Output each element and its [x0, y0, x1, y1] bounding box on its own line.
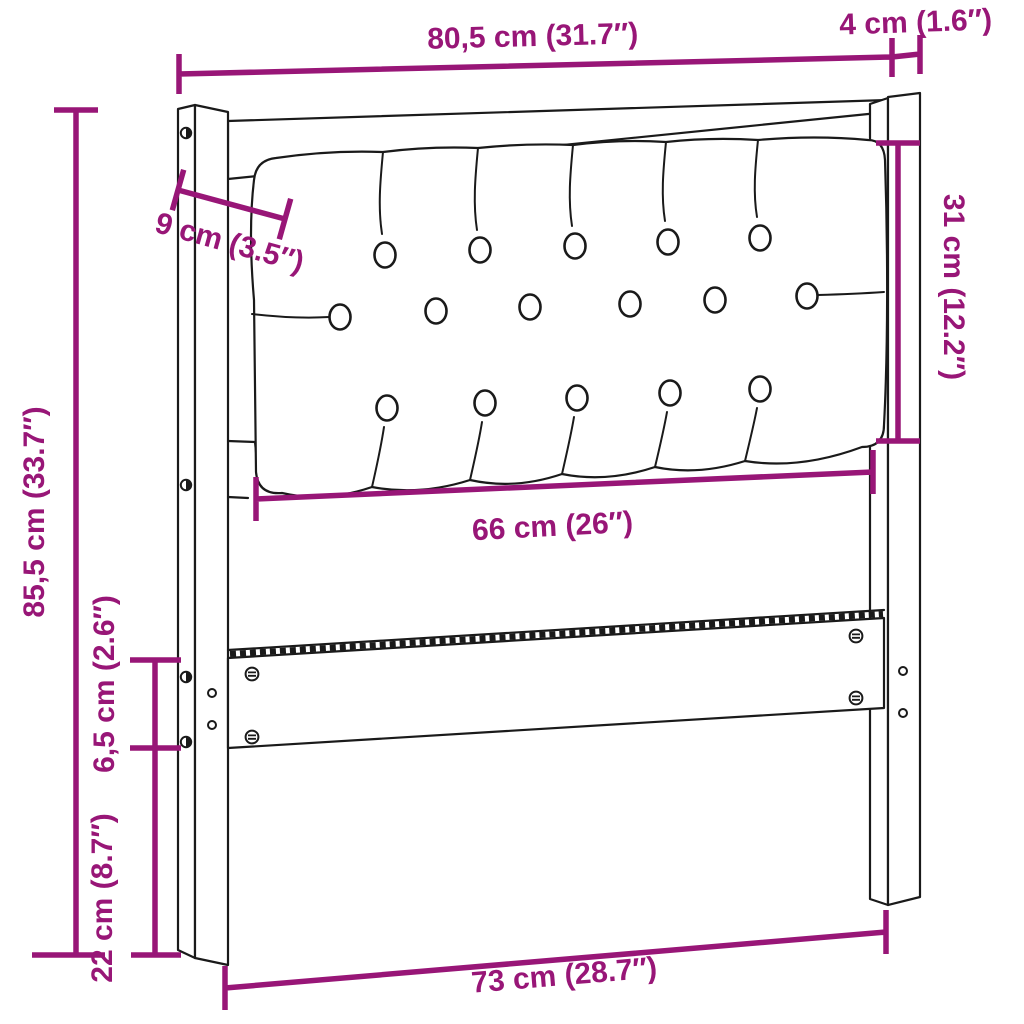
bottom-board: [228, 610, 884, 748]
dim-label-overall-width: 80,5 cm (31.7″): [427, 17, 639, 56]
diagram-svg: 80,5 cm (31.7″) 4 cm (1.6″) 85,5 cm (33.…: [0, 0, 1024, 1024]
dim-overall-width: 80,5 cm (31.7″): [179, 17, 892, 94]
dim-rail-height: 6,5 cm (2.6″): [88, 595, 181, 773]
dim-label-panel-height: 31 cm (12.2″): [937, 194, 970, 380]
upholstered-cushion: [251, 138, 887, 497]
dim-leg-clearance: 22 cm (8.7″): [86, 748, 181, 983]
board-screw: [850, 630, 863, 643]
dim-label-rail-height: 6,5 cm (2.6″): [88, 595, 121, 773]
left-post-hole: [208, 689, 216, 697]
dim-label-leg-clearance: 22 cm (8.7″): [86, 813, 119, 982]
dim-label-post-depth: 4 cm (1.6″): [839, 3, 993, 41]
right-post-hole: [899, 709, 907, 717]
board-screw: [850, 692, 863, 705]
dim-post-depth: 4 cm (1.6″): [839, 3, 993, 74]
dim-label-overall-height: 85,5 cm (33.7″): [18, 406, 51, 617]
right-post: [888, 93, 920, 905]
dim-inner-width: 73 cm (28.7″): [225, 910, 886, 1010]
left-post-hole: [208, 721, 216, 729]
headboard-dimension-diagram: 80,5 cm (31.7″) 4 cm (1.6″) 85,5 cm (33.…: [0, 0, 1024, 1024]
dim-label-inner-width: 73 cm (28.7″): [470, 951, 658, 999]
board-screw: [246, 668, 259, 681]
board-screw: [246, 731, 259, 744]
dim-label-panel-width: 66 cm (26″): [471, 506, 634, 547]
right-post-hole: [899, 667, 907, 675]
